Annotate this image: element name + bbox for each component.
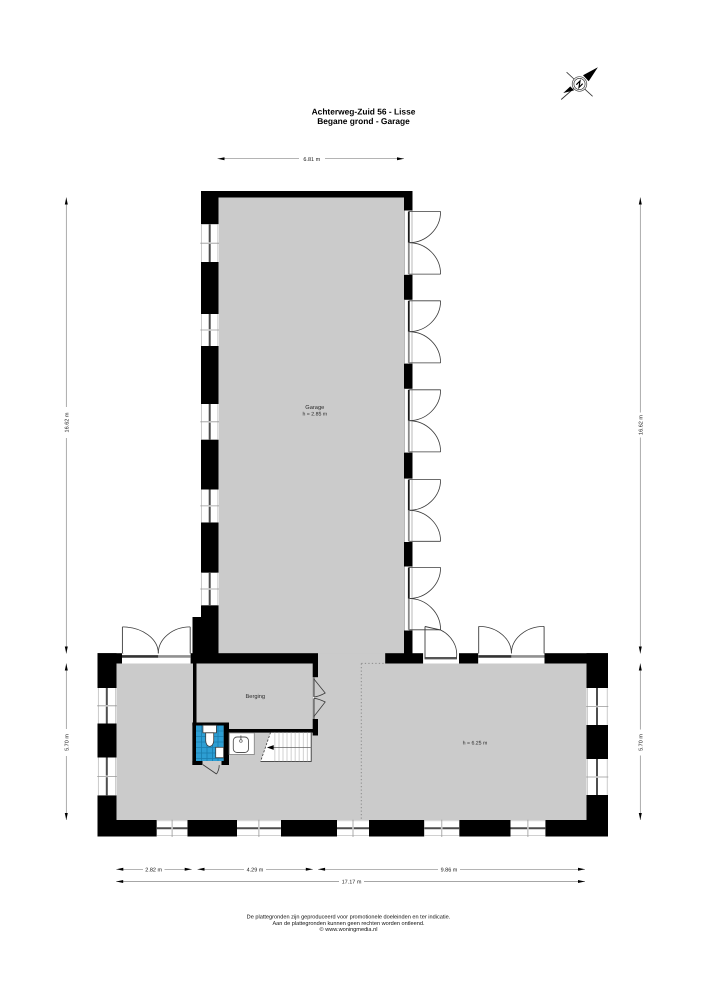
svg-text:6.81 m: 6.81 m xyxy=(303,157,320,163)
svg-text:16.62 m: 16.62 m xyxy=(638,415,644,435)
svg-text:© www.woningmedia.nl: © www.woningmedia.nl xyxy=(320,926,378,933)
svg-text:16.62 m: 16.62 m xyxy=(64,412,70,432)
svg-text:De plattegronden zijn geproduc: De plattegronden zijn geproduceerd voor … xyxy=(247,914,451,921)
svg-text:Aan de plattegronden kunnen ge: Aan de plattegronden kunnen geen rechten… xyxy=(272,920,425,927)
svg-text:4.29 m: 4.29 m xyxy=(247,867,264,873)
svg-text:Begane grond - Garage: Begane grond - Garage xyxy=(317,116,410,126)
svg-text:Berging: Berging xyxy=(245,693,265,700)
svg-text:Garage: Garage xyxy=(305,405,324,411)
svg-text:h = 2.85 m: h = 2.85 m xyxy=(302,411,327,417)
svg-text:2.82 m: 2.82 m xyxy=(145,867,162,873)
svg-text:5.70 m: 5.70 m xyxy=(638,734,644,751)
svg-text:h = 6.25 m: h = 6.25 m xyxy=(463,740,488,746)
svg-text:5.70 m: 5.70 m xyxy=(64,734,70,751)
svg-text:17.17 m: 17.17 m xyxy=(342,880,362,886)
svg-text:Achterweg-Zuid 56 - Lisse: Achterweg-Zuid 56 - Lisse xyxy=(312,106,416,116)
svg-text:9.86 m: 9.86 m xyxy=(441,867,458,873)
